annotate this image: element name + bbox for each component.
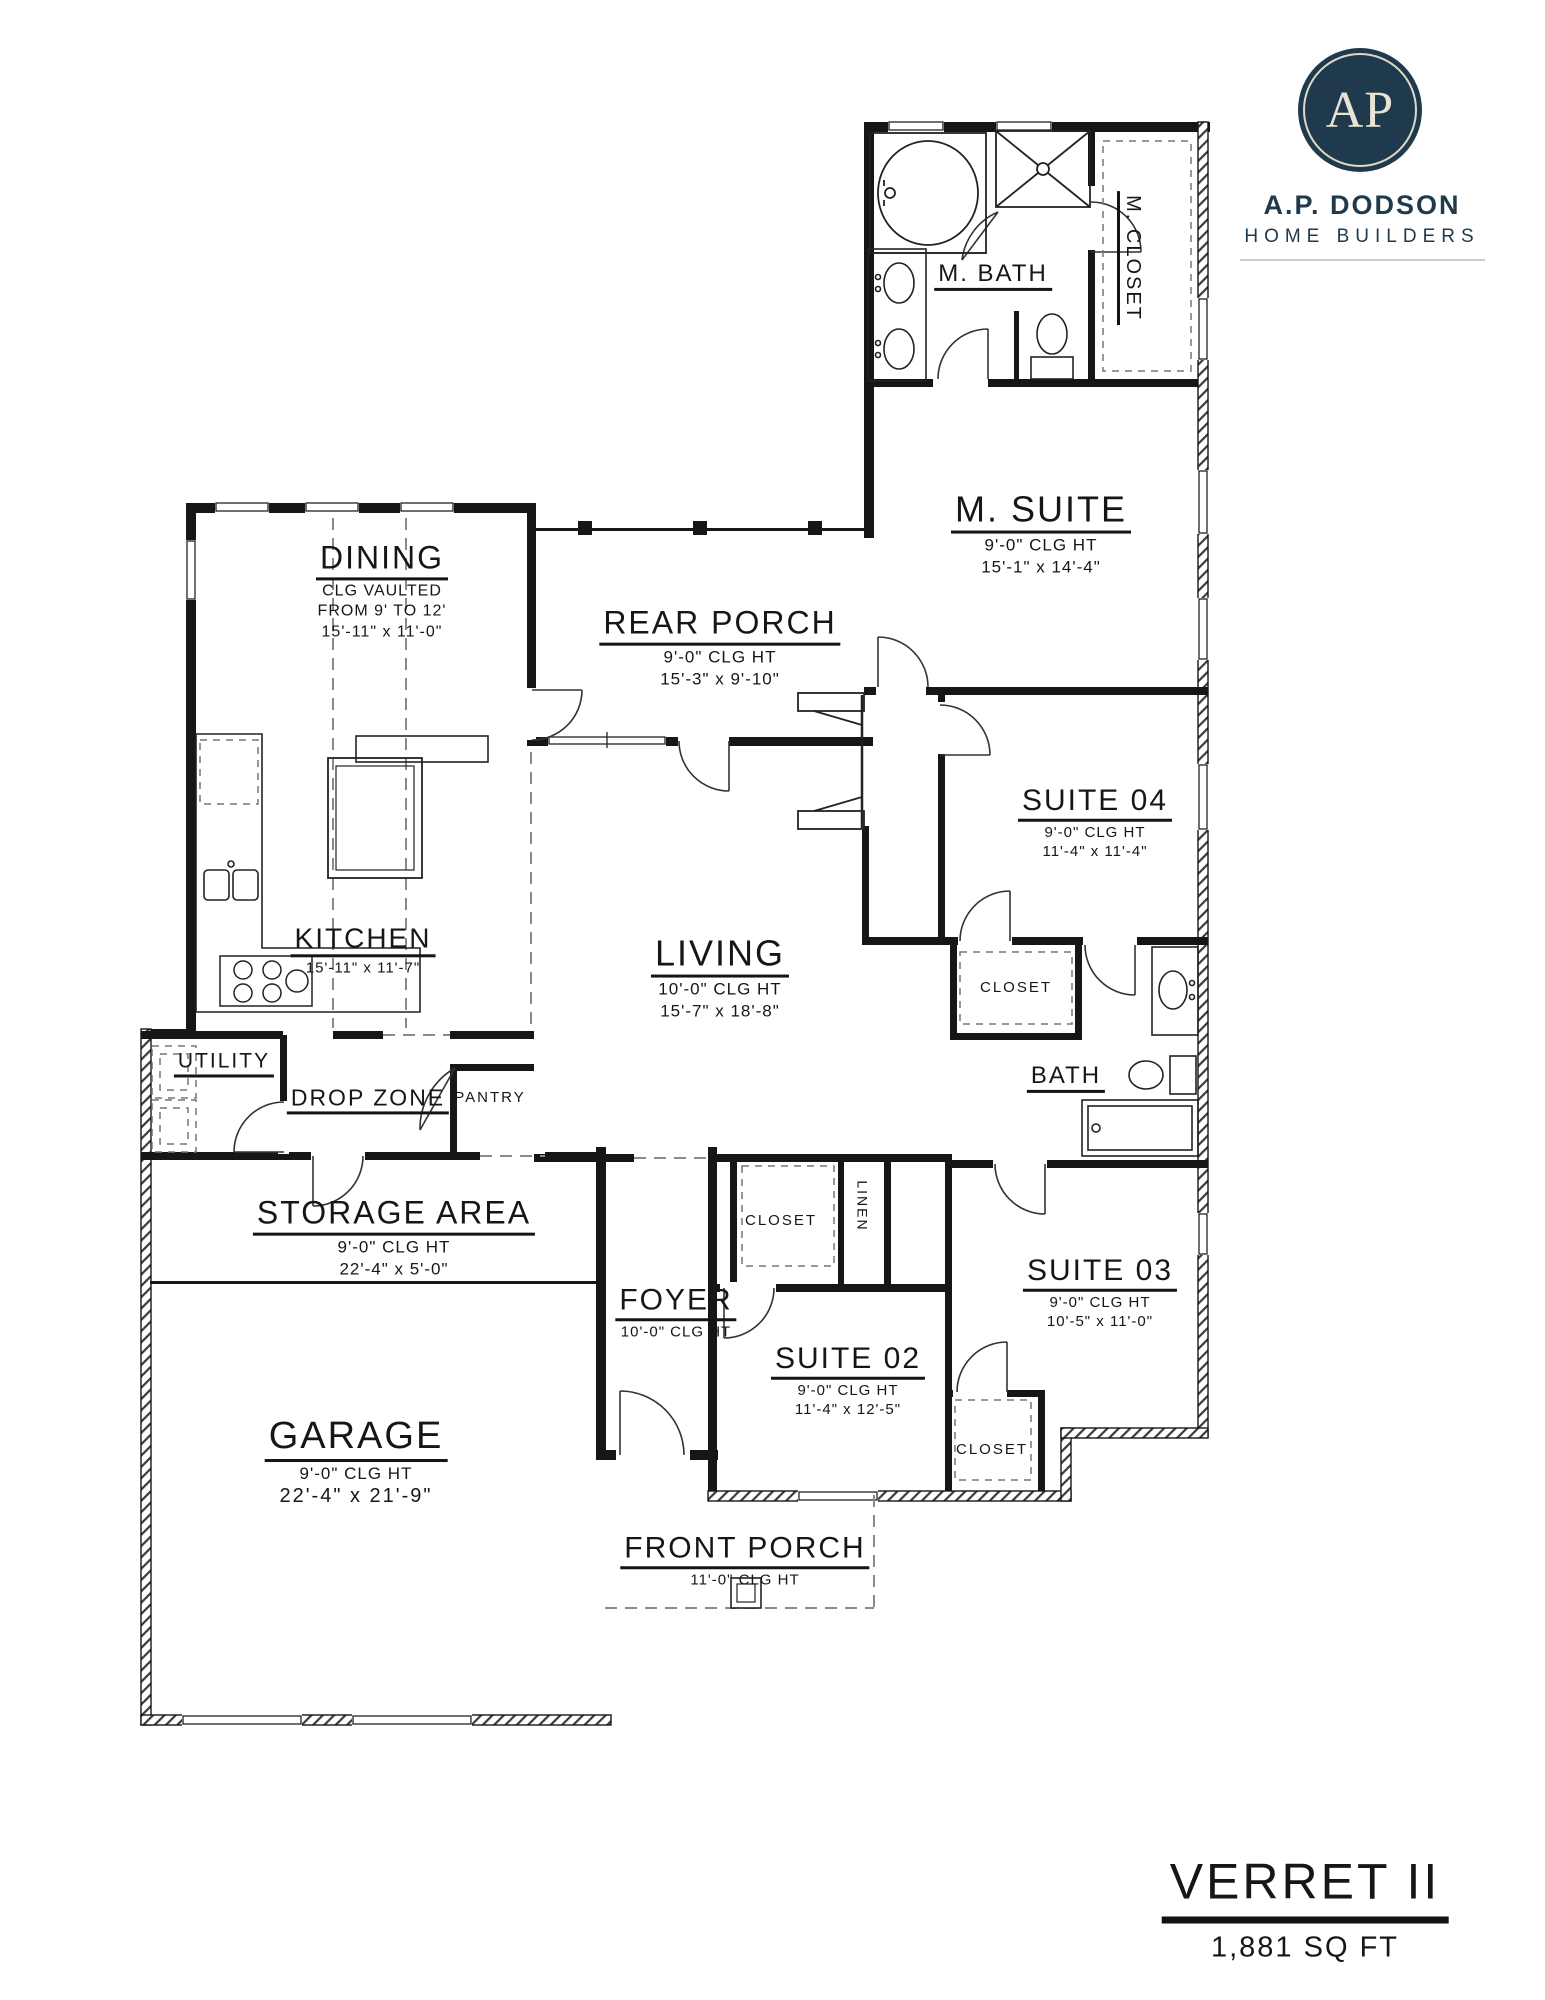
room-name: FOYER — [615, 1284, 736, 1321]
room-name: SUITE 03 — [1023, 1255, 1177, 1292]
room-label-front-porch: FRONT PORCH 11'-0" CLG HT — [620, 1532, 869, 1588]
room-ceiling: 9'-0" CLG HT — [1049, 1293, 1150, 1310]
room-ceiling: 9'-0" CLG HT — [338, 1237, 451, 1257]
vanity-icon — [1152, 947, 1198, 1035]
room-label-closet-suite03: CLOSET — [956, 1442, 1028, 1458]
room-ceiling: 9'-0" CLG HT — [797, 1381, 898, 1398]
shower-icon — [996, 131, 1090, 207]
room-name: CLOSET — [980, 980, 1052, 996]
room-ceiling: 9'-0" CLG HT — [985, 535, 1098, 555]
garage-door — [352, 1712, 472, 1728]
room-label-storage: STORAGE AREA 9'-0" CLG HT 22'-4" x 5'-0" — [253, 1197, 535, 1280]
room-label-suite03: SUITE 03 9'-0" CLG HT 10'-5" x 11'-0" — [1023, 1255, 1177, 1330]
room-name: STORAGE AREA — [253, 1197, 535, 1236]
room-name: DROP ZONE — [287, 1085, 449, 1114]
room-name: FRONT PORCH — [620, 1532, 869, 1569]
logo-divider — [1240, 259, 1485, 261]
room-label-closet-suite04: CLOSET — [980, 980, 1052, 996]
builder-tagline: HOME BUILDERS — [1212, 226, 1512, 248]
builder-logo: AP — [1298, 48, 1422, 172]
room-dims: 22'-4" x 21'-9" — [279, 1486, 432, 1507]
room-name: M. CLOSET — [1117, 191, 1143, 325]
logo-monogram: AP — [1326, 81, 1394, 140]
room-label-linen: LINEN — [855, 1180, 870, 1231]
bathtub-icon — [868, 133, 986, 253]
room-dims: 15'-3" x 9'-10" — [660, 669, 780, 689]
floor-plan-page: AP A.P. DODSON HOME BUILDERS M. BATH M. … — [0, 0, 1545, 2000]
plan-area: 1,881 SQ FT — [1211, 1932, 1399, 1965]
room-label-foyer: FOYER 10'-0" CLG HT — [615, 1284, 736, 1340]
room-name: M. SUITE — [951, 491, 1131, 534]
garage-door — [182, 1712, 302, 1728]
room-label-suite04: SUITE 04 9'-0" CLG HT 11'-4" x 11'-4" — [1018, 785, 1172, 860]
plan-title: VERRET II — [1162, 1853, 1449, 1924]
rear-porch-edge — [534, 521, 864, 535]
room-label-dining: DINING CLG VAULTED FROM 9' TO 12' 15'-11… — [316, 541, 448, 642]
room-name: CLOSET — [745, 1213, 817, 1229]
room-dims: 15'-11" x 11'-7" — [306, 960, 420, 977]
room-ceiling: CLG VAULTED — [322, 582, 442, 601]
room-name: CLOSET — [956, 1442, 1028, 1458]
room-dims: 15'-11" x 11'-0" — [322, 624, 443, 643]
room-ceiling: 9'-0" CLG HT — [300, 1464, 413, 1484]
room-name: LINEN — [855, 1180, 870, 1231]
bathtub-icon — [1082, 1100, 1198, 1156]
room-ceiling: 9'-0" CLG HT — [664, 647, 777, 667]
room-dims: 11'-4" x 12'-5" — [795, 1400, 901, 1417]
room-label-bath: BATH — [1027, 1063, 1105, 1093]
room-ceiling: 10'-0" CLG HT — [658, 979, 781, 999]
room-label-m-bath: M. BATH — [934, 261, 1052, 291]
room-label-garage: GARAGE 9'-0" CLG HT 22'-4" x 21'-9" — [265, 1417, 448, 1507]
room-name: REAR PORCH — [599, 607, 840, 646]
room-name: SUITE 04 — [1018, 785, 1172, 822]
room-name: GARAGE — [265, 1417, 448, 1462]
room-ceiling: 11'-0" CLG HT — [690, 1571, 799, 1588]
toilet-icon — [1031, 314, 1073, 379]
room-label-m-suite: M. SUITE 9'-0" CLG HT 15'-1" x 14'-4" — [951, 491, 1131, 578]
room-label-kitchen: KITCHEN 15'-11" x 11'-7" — [291, 923, 436, 976]
room-ceiling: 10'-0" CLG HT — [621, 1323, 731, 1340]
room-label-drop-zone: DROP ZONE — [287, 1085, 449, 1114]
room-name: BATH — [1027, 1063, 1105, 1093]
room-dims: 11'-4" x 11'-4" — [1042, 842, 1147, 859]
room-name: UTILITY — [174, 1050, 274, 1077]
room-label-utility: UTILITY — [174, 1050, 274, 1077]
room-ceiling: 9'-0" CLG HT — [1044, 823, 1145, 840]
room-dims: 15'-1" x 14'-4" — [981, 557, 1101, 577]
room-label-living: LIVING 10'-0" CLG HT 15'-7" x 18'-8" — [651, 935, 789, 1022]
room-name: KITCHEN — [291, 923, 436, 957]
room-dims: 22'-4" x 5'-0" — [339, 1259, 448, 1279]
room-name: SUITE 02 — [771, 1343, 925, 1380]
room-label-closet-foyer: CLOSET — [745, 1213, 817, 1229]
room-dims: 15'-7" x 18'-8" — [660, 1001, 780, 1021]
room-label-pantry: PANTRY — [454, 1090, 525, 1106]
room-dims: 10'-5" x 11'-0" — [1047, 1312, 1153, 1329]
room-name: M. BATH — [934, 261, 1052, 291]
room-label-suite02: SUITE 02 9'-0" CLG HT 11'-4" x 12'-5" — [771, 1343, 925, 1418]
fireplace-icon — [798, 693, 864, 829]
room-name: PANTRY — [454, 1090, 525, 1106]
double-vanity-icon — [868, 249, 926, 381]
room-label-rear-porch: REAR PORCH 9'-0" CLG HT 15'-3" x 9'-10" — [599, 607, 840, 690]
kitchen-island-icon — [328, 758, 422, 878]
room-label-m-closet: M. CLOSET — [1117, 191, 1143, 325]
room-ceiling: FROM 9' TO 12' — [318, 603, 447, 622]
room-name: LIVING — [651, 935, 789, 978]
toilet-icon — [1129, 1056, 1196, 1094]
builder-name: A.P. DODSON — [1212, 190, 1512, 221]
room-name: DINING — [316, 541, 448, 580]
